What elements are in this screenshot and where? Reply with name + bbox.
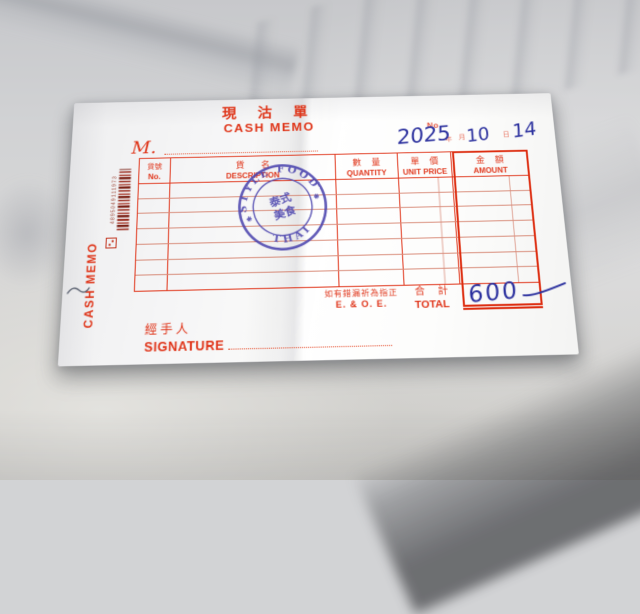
total-label: 合 計 TOTAL [403,286,462,311]
handwritten-month: 10 [466,124,491,147]
day-label: 日 [502,130,510,139]
receipt-title: 現 沽 單 CASH MEMO [222,105,317,135]
handwritten-year: 2025 [397,122,451,150]
signature-line [228,345,392,350]
handwritten-day: 14 [512,117,537,142]
receipt-paper: 現 沽 單 CASH MEMO No. 年 月 日 2025 10 14 M. … [58,93,579,366]
stamp-ornament-left: ❋ [245,215,253,225]
thai-style-food-stamp: STYLE FOOD THAI 泰式 美食 ❋ ❋ [235,160,332,254]
month-label: 月 [458,133,465,142]
svg-text:THAI: THAI [268,220,317,251]
title-english: CASH MEMO [222,120,317,135]
bottom-vignette [0,410,640,480]
handwritten-total: 600 [468,277,520,308]
photo-scene: 現 沽 單 CASH MEMO No. 年 月 日 2025 10 14 M. … [0,0,640,480]
brand-logo-icon [105,237,117,248]
signature-block: 經手人 SIGNATURE [144,317,393,358]
stamp-arc-bottom-text: THAI [268,220,317,251]
stamp-ornament-right: ❋ [312,192,320,201]
header-amount: 金 額 AMOUNT [451,151,529,177]
customer-prefix: M. [131,137,156,158]
pen-squiggle-mark [66,283,91,298]
errors-omissions-note: 如有錯漏祈為指正 E. & O. E. [305,288,418,311]
header-item-no: 貨號 No. [139,158,171,183]
cash-memo-receipt: 現 沽 單 CASH MEMO No. 年 月 日 2025 10 14 M. … [58,93,579,366]
barcode-bars-icon [117,169,131,230]
memo-table: 貨號 No. 貨 名 DESCRIPTION 數 量 QUANTITY 單 價 … [134,150,541,292]
header-quantity: 數 量 QUANTITY [335,153,398,179]
header-unit-price: 單 價 UNIT PRICE [397,152,453,177]
pen-tick-mark [520,280,573,301]
